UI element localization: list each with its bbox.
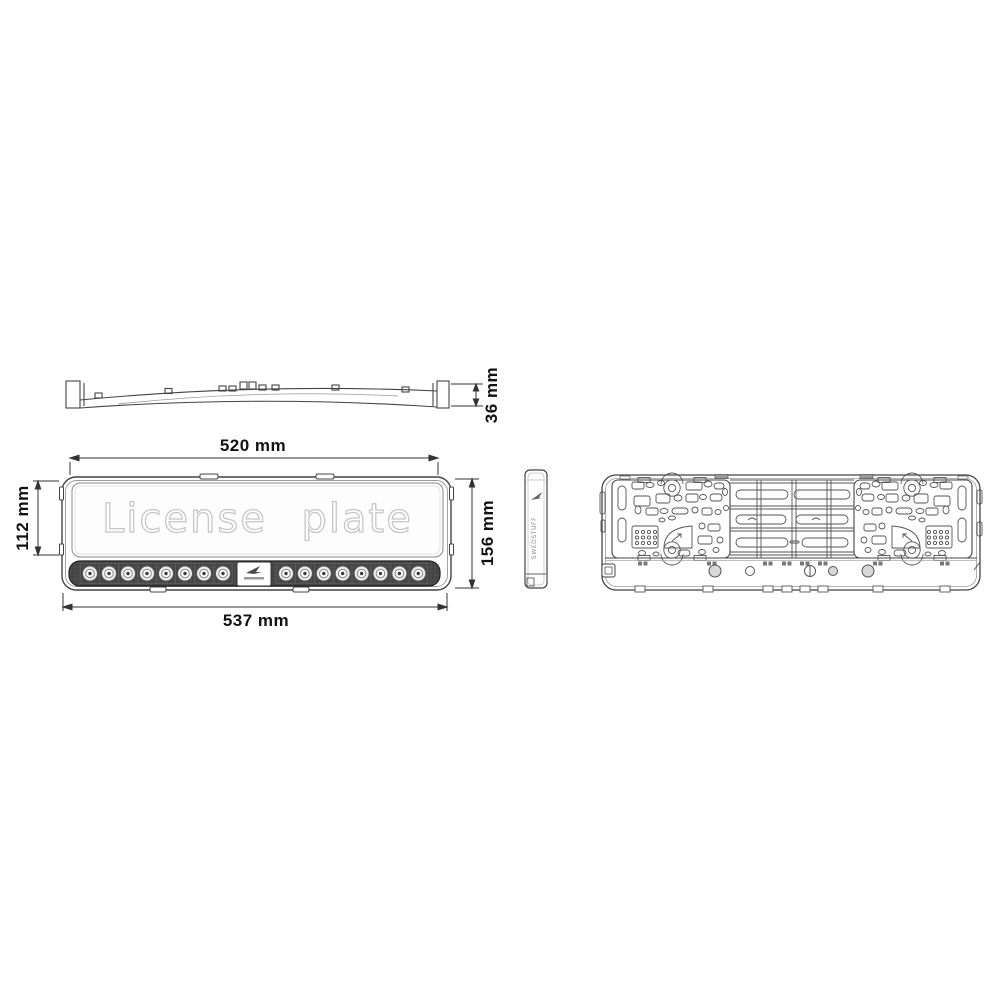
dimension-lines [0, 0, 1000, 1000]
dim-total-height-label: 156 mm [478, 500, 498, 566]
dim-total-width-label: 537 mm [223, 611, 289, 631]
dim-profile-height-label: 36 mm [482, 367, 502, 423]
dim-inner-width-label: 520 mm [220, 436, 286, 456]
dim-window-height-label: 112 mm [13, 485, 33, 550]
technical-drawing: License plate SWEDSTUFF [0, 0, 1000, 1000]
